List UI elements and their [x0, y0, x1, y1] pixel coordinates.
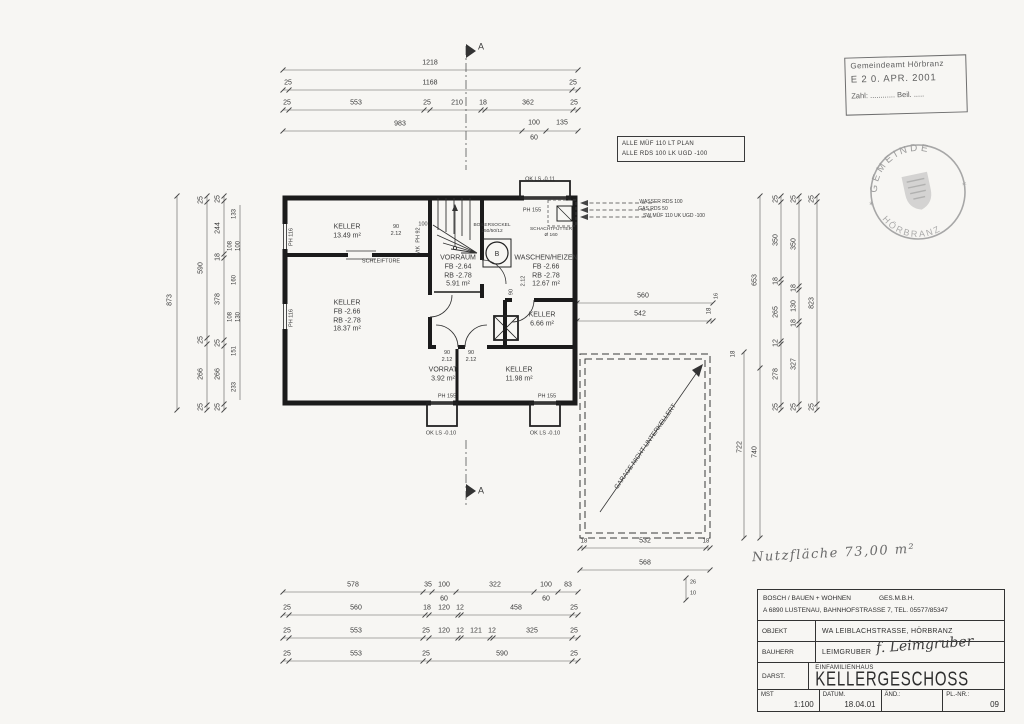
plan-note-box: ALLE MÜF 110 LT PLAN ALLE RDS 100 LK UGD… [617, 136, 745, 162]
title-block: BOSCH / BAUEN + WOHNEN GES.M.B.H. A 6890… [757, 589, 1005, 712]
municipality-stamp: Gemeindeamt Hörbranz E 2 0. APR. 2001 Za… [844, 54, 968, 115]
stamp-zahl: Zahl: ............ Beil. ..... [851, 88, 961, 100]
company-name: BOSCH / BAUEN + WOHNEN [763, 593, 851, 605]
arrowhead [580, 207, 588, 213]
cell-datum: DATUM. 18.04.01 [820, 690, 882, 711]
stamp-office: Gemeindeamt Hörbranz [850, 58, 960, 70]
arrowhead [580, 200, 588, 206]
bauherr-value: LEIMGRUBER [816, 649, 871, 656]
floor-plan-sheet: B [0, 0, 1024, 724]
section-arrow-bottom [466, 484, 476, 498]
darst-drawing-title: KELLERGESCHOSS [815, 668, 969, 691]
section-arrow-top [466, 44, 476, 58]
municipal-seal: GEMEINDE HÖRBRANZ ✶ ✶ [849, 123, 987, 261]
objekt-label: OBJEKT [758, 621, 816, 641]
window-openings [284, 197, 567, 405]
plan-number: 09 [990, 700, 999, 709]
scale-value: 1:100 [794, 700, 814, 709]
objekt-value: WA LEIBLACHSTRASSE, HÖRBRANZ [816, 628, 953, 635]
title-block-footer: MST 1:100 DATUM. 18.04.01 ÄND.: PL.-NR.:… [758, 690, 1004, 711]
seal-crest [902, 172, 935, 213]
svg-text:HÖRBRANZ: HÖRBRANZ [879, 204, 943, 248]
bauherr-label: BAUHERR [758, 642, 816, 662]
garage-arrow [600, 364, 703, 512]
stamp-date: E 2 0. APR. 2001 [851, 71, 961, 85]
walls [285, 198, 575, 403]
row-bauherr: BAUHERR LEIMGRUBER f. Leimgruber [758, 642, 1004, 663]
boiler-letter: B [495, 251, 500, 258]
company-address: A 6890 LUSTENAU, BAHNHOFSTRASSE 7, TEL. … [763, 605, 999, 617]
title-block-header: BOSCH / BAUEN + WOHNEN GES.M.B.H. A 6890… [758, 590, 1004, 621]
note-line-2: ALLE RDS 100 LK UGD -100 [622, 149, 740, 159]
darst-label: DARST. [758, 663, 809, 689]
seal-star-left: ✶ [868, 199, 876, 208]
seal-star-right: ✶ [961, 180, 969, 189]
stair-arrow [452, 204, 458, 211]
date-value: 18.04.01 [844, 700, 875, 709]
cell-mst: MST 1:100 [758, 690, 820, 711]
seal-text-bottom: HÖRBRANZ [879, 204, 943, 248]
arrowhead [580, 214, 588, 220]
light-wells [427, 181, 570, 426]
company-type: GES.M.B.H. [879, 593, 914, 605]
cell-plnr: PL.-NR.: 09 [943, 690, 1004, 711]
row-darst: DARST. EINFAMILIENHAUS KELLERGESCHOSS [758, 663, 1004, 690]
note-line-1: ALLE MÜF 110 LT PLAN [622, 139, 740, 149]
cell-aend: ÄND.: [882, 690, 944, 711]
